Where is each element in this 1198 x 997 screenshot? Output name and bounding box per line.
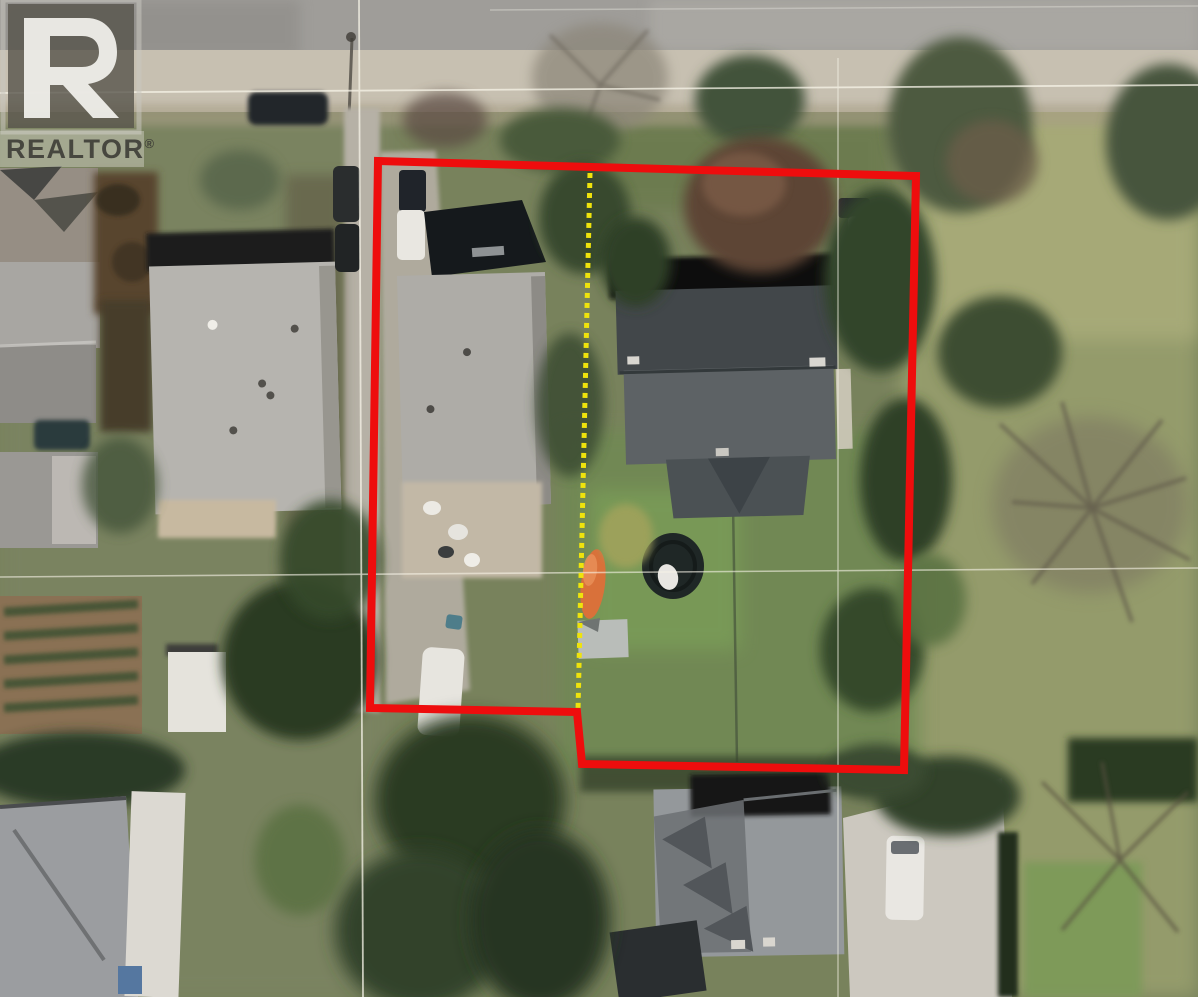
bushes [938,296,1062,408]
parked-car [335,224,360,272]
tree-canopy [536,333,604,477]
house-roof [397,272,551,508]
tree-canopy-brown [403,92,487,148]
woodpile-shadow [96,184,140,216]
patio-clutter [423,501,441,515]
white-shed [168,652,226,732]
copper-tree-highlight [702,152,786,216]
white-truck [397,210,425,260]
hedge-column [998,832,1018,997]
truck-canopy [399,170,426,212]
tree-canopy [200,150,280,210]
aerial-scene: REALTOR® [0,0,1198,997]
roof-vent [716,448,729,456]
house-roof [0,262,100,348]
parked-car [34,420,90,450]
blue-tarp [118,966,142,994]
eave-detail [731,940,745,949]
van-windshield [891,841,919,854]
realtor-label-text: REALTOR [6,134,145,164]
aerial-map-image: REALTOR® [0,0,1198,997]
house-roof [149,262,341,515]
realtor-label: REALTOR® [6,134,156,164]
house-roof [0,796,138,997]
neighbor-house-center [146,229,341,515]
tree-canopy [280,500,380,620]
patio-clutter [464,553,480,567]
yellow-bush [599,504,653,568]
parcel-house-west [397,272,551,508]
parked-car [248,92,328,125]
hedge-band [1068,738,1198,802]
roof-lower-slope [624,365,836,464]
patio-clutter [448,524,468,540]
house-roof-slope [0,345,96,423]
registered-mark: ® [145,136,156,151]
roof-vent [809,357,825,366]
garden-soil [0,596,142,734]
teal-item [445,614,463,630]
roof-vent [627,356,639,364]
tree-canopy-light [255,805,345,915]
woodpile-shadow [112,242,152,282]
hedge-row [100,300,152,432]
tree-canopy [601,217,671,307]
parked-car [333,166,360,222]
realtor-watermark: REALTOR® [0,0,156,167]
bushes [82,437,158,533]
dark-roof-corner [610,920,707,997]
utility-pole-top [346,32,356,42]
patio-deck [158,500,276,538]
grass-strip [1024,862,1142,997]
patio-clutter [438,546,454,558]
tree-canopy-brown [946,120,1038,204]
tree-canopy [695,55,805,145]
eave-detail [763,937,775,946]
